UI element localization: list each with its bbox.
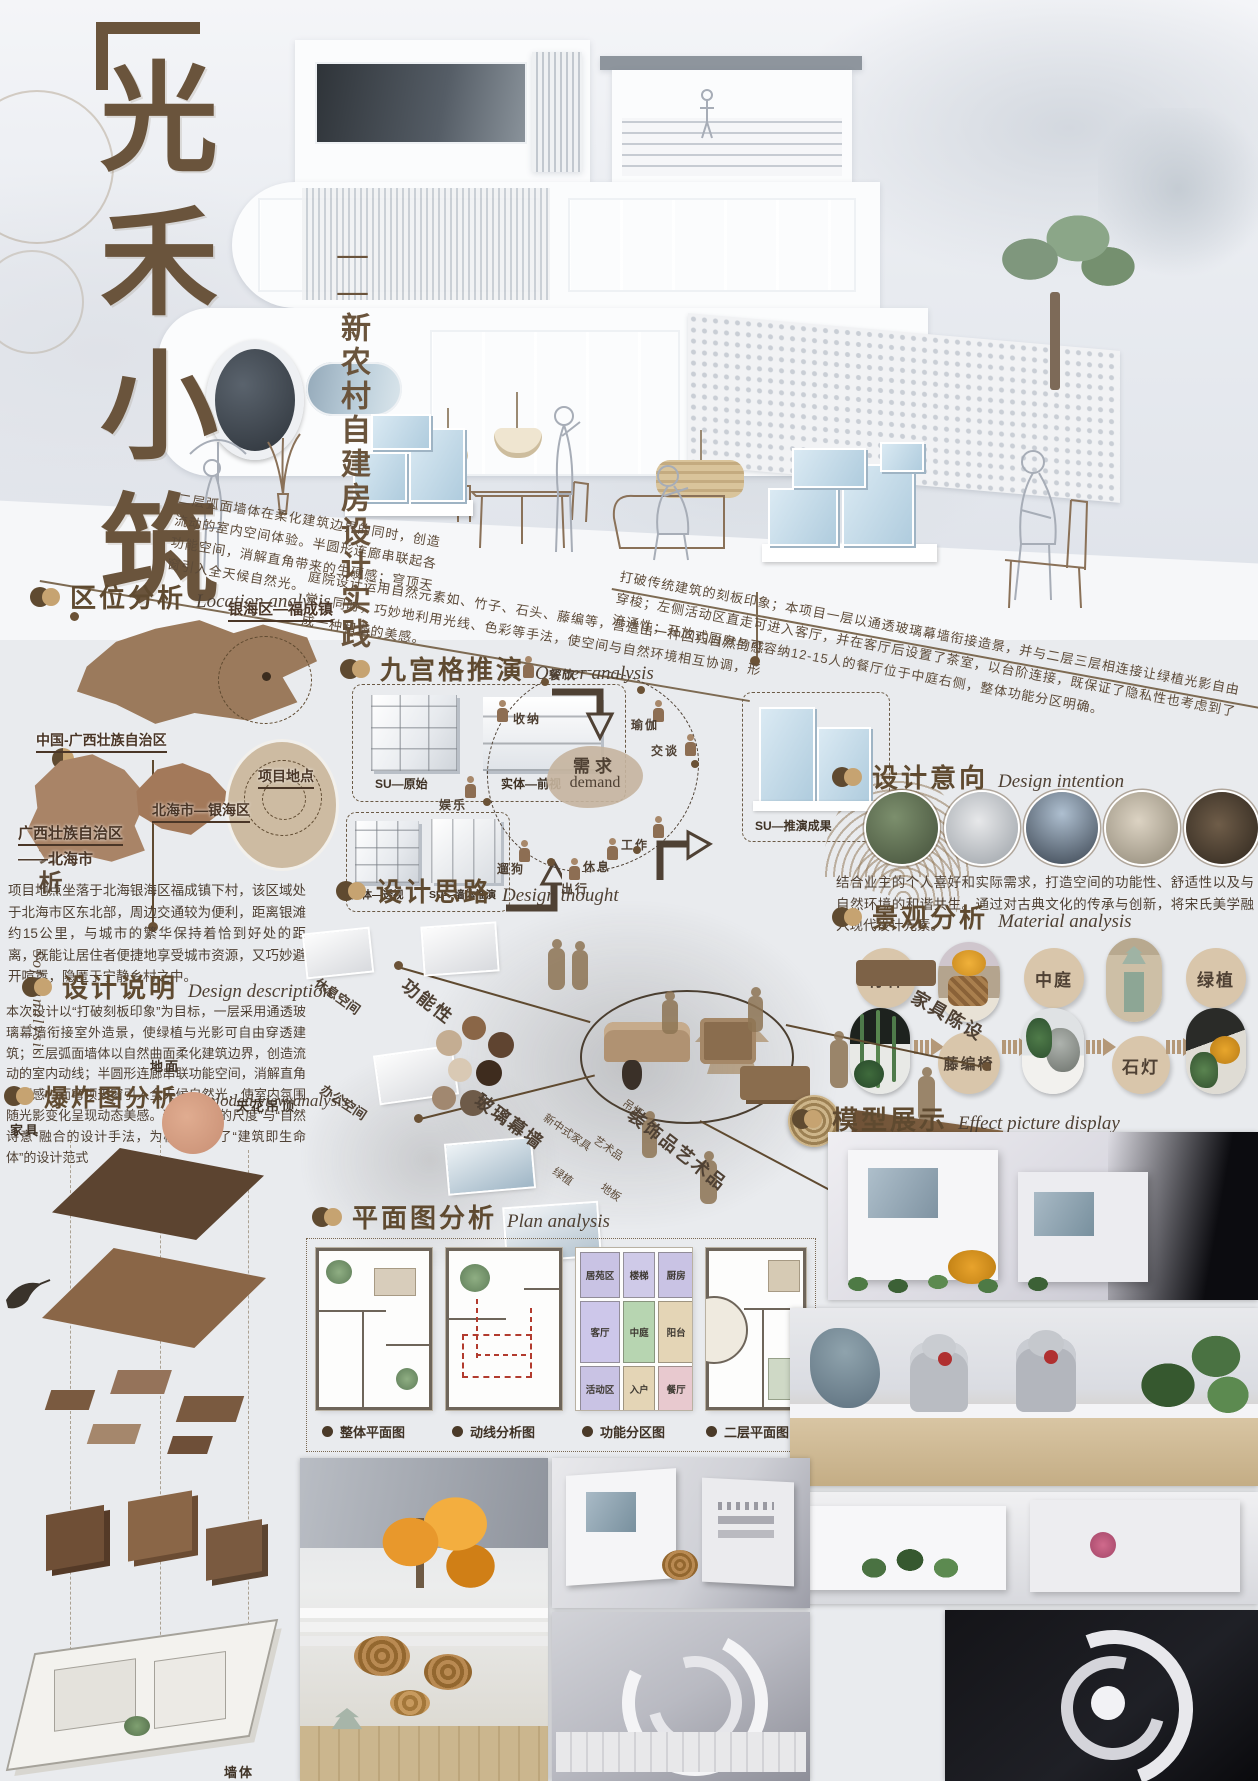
standing-figure-sketch [540,402,590,562]
material-label-stonelamp: 石灯 [1112,1036,1170,1094]
demand-item: 瑜伽 [631,716,659,733]
material-label-greenery: 绿植 [1186,948,1246,1008]
thought-dot [414,1114,423,1123]
exploded-label-ground: 地面 [150,1056,180,1075]
legend-label: 整体平面图 [340,1422,405,1441]
person-icon [517,840,531,862]
figure-silhouette [830,1040,848,1088]
demand-item: 餐饮 [549,666,577,683]
figure-silhouette [662,1000,678,1034]
ring-dot [691,760,699,768]
photo-lion-terrace [790,1308,1258,1486]
legend-label: 动线分析图 [470,1422,535,1441]
section-material: 景观分析 Material analysis [832,898,1132,935]
hero-model-b [762,440,937,565]
palette-dot [488,1032,514,1058]
ring-dot [547,858,555,866]
thought-thumb-cabinet [422,924,497,975]
plan-legend-item: 功能分区图 [582,1422,665,1441]
map-beihai [128,760,233,838]
building-top-window [315,62,527,144]
intention-photo-interior [1186,792,1258,864]
su-model-original [371,695,457,771]
ring-dot [541,678,549,686]
section-bullet-icon [792,1109,822,1129]
photo-white-spiral-stair [552,1612,810,1781]
terrace-figure-sketch [694,88,720,140]
person-icon [521,656,535,678]
legend-label: 功能分区图 [600,1422,665,1441]
plant-pot-sketch [248,398,318,518]
poster-title-char: 光 [84,62,234,180]
section-bullet-icon [4,1086,34,1106]
exploded-floor-slab [42,1248,266,1348]
grandma-sofa-sketch [604,448,764,578]
photo-model-interior [552,1458,810,1608]
legend-dot-icon [582,1426,593,1437]
section-title-en: Design intention [998,771,1124,793]
intention-photo-house [1026,792,1098,864]
section-bullet-icon [340,659,370,679]
section-plan: 平面图分析 Plan analysis [312,1198,610,1235]
section-title-en: Plan analysis [507,1211,610,1233]
section-bullet-icon [832,907,862,927]
legend-dot-icon [452,1426,463,1437]
exploded-label-ceiling: 天花吊顶 [236,1096,296,1115]
section-title-zh: 区位分析 [70,578,186,615]
chain-arrow-icon [1086,1038,1116,1056]
section-bullet-icon [336,881,366,901]
plan-legend-item: 二层平面图 [706,1422,789,1441]
section-bullet-icon [312,1207,342,1227]
exploded-wall-layer [14,1620,290,1770]
plan-overall [316,1248,432,1410]
crane-bird-icon [2,1270,52,1316]
map-label-town: 银海区—福成镇 [228,598,333,622]
building-mid-glass-right [568,198,856,292]
intention-photo-facade [946,792,1018,864]
photo-courtyard-model [300,1458,548,1781]
building-terrace-railing [622,118,842,176]
design-poster: 光 禾 小 筑 ——新农村自建房设计实践 项目分析 Soft analysis … [0,0,1258,1781]
palette-dot [436,1030,462,1056]
cabinet-silhouette [856,960,936,986]
sun-circle-icon [162,1092,224,1154]
person-icon [651,816,665,838]
room-cell: 餐厅 [658,1366,692,1410]
section-title-en: Design description [188,981,332,1003]
palette-dot [476,1060,502,1086]
section-title-en: Design thought [502,885,619,907]
material-photo-plant [1186,1008,1246,1094]
person-icon [463,776,477,798]
room-cell: 客厅 [580,1301,620,1363]
section-bullet-icon [832,767,862,787]
legend-dot-icon [322,1426,333,1437]
legend-dot-icon [706,1426,717,1437]
thought-dot [394,961,403,970]
demand-item: 交谈 [651,742,679,759]
material-photo-lantern [1106,938,1162,1022]
room-cell: 活动区 [580,1366,620,1410]
demand-item: 收纳 [513,710,541,727]
demand-item: 娱乐 [439,796,467,813]
room-cell: 楼梯 [623,1252,655,1298]
ring-dot [633,846,641,854]
section-title-zh: 平面图分析 [352,1198,497,1235]
photo-model-plants [790,1492,1258,1604]
exploded-furniture-layer [30,1360,280,1470]
plan-legend-item: 动线分析图 [452,1422,535,1441]
tree-trunk-icon [1050,292,1060,390]
photo-model-macro [828,1132,1258,1300]
demand-diagram: 需求 demand 餐饮 收纳 瑜伽 交谈 工作 休息 出行 遛狗 娱乐 [455,648,725,898]
intention-photo-balcony [1106,792,1178,864]
section-bullet-icon [30,587,60,607]
exploded-label-furniture: 家具 [10,1120,40,1139]
map-label-province2: ——北海市 [18,848,93,870]
plan-legend-item: 整体平面图 [322,1422,405,1441]
map-label-district: 北海市—银海区 [152,800,250,823]
tree-foliage-icon [985,202,1135,306]
section-thought: 设计思路 Design thought [336,872,619,909]
section-description: 设计说明 Design description [22,968,332,1005]
building-louvre-screen [532,52,582,172]
section-title-zh: 景观分析 [872,898,988,935]
thought-thumb-glass [446,1138,534,1193]
material-photo-rock [1022,1008,1084,1094]
photo-dark-spiral-stair [945,1610,1258,1781]
palette-dot [448,1058,472,1082]
map-label-province: 广西壮族自治区 [18,822,123,846]
section-bullet-icon [22,977,52,997]
section-intention: 设计意向 Design intention [832,758,1124,795]
legend-label: 二层平面图 [724,1422,789,1441]
room-cell: 阳台 [658,1301,692,1363]
thought-thumb-tvwall [304,929,372,977]
section-title-zh: 设计思路 [376,872,492,909]
thought-dot [982,1062,991,1071]
map-site-dot [262,672,271,681]
material-photo-bamboo [850,1008,910,1094]
ring-dot [483,798,491,806]
map-label-site: 项目地点 [258,766,314,789]
demand-center-en: demand [547,774,643,792]
room-cell: 入户 [623,1366,655,1410]
table-silhouette [740,1066,810,1100]
ring-dot [637,686,645,694]
section-title-zh: 设计意向 [872,758,988,795]
room-cell: 居苑区 [580,1252,620,1298]
room-cell: 中庭 [623,1301,655,1363]
su-model-label: SU—推演成果 [755,817,832,834]
section-title-en: Material analysis [998,911,1132,933]
person-icon [683,734,697,756]
lamp-cord-icon [516,392,518,430]
palette-dot [432,1086,456,1110]
material-label-atrium: 中庭 [1024,948,1084,1008]
poster-title-char: 小 [84,350,234,468]
figure-silhouette [572,950,588,990]
figure-silhouette [748,996,763,1032]
plan-circulation [446,1248,562,1410]
section-title-zh: 设计说明 [62,968,178,1005]
vase-icon [622,1060,642,1090]
building-roof-slab [600,56,862,70]
exploded-cabinet-layer [36,1490,276,1610]
section-title-zh: 爆炸图分析 [44,1078,179,1113]
intention-photo-garden [866,792,938,864]
poster-subtitle: ——新农村自建房设计实践 [330,238,374,718]
person-icon [495,700,509,722]
su-model-label: SU—原始 [375,775,428,792]
map-label-china: 中国-广西壮族自治区 [36,730,167,753]
person-icon [605,838,619,860]
reading-man-sketch [975,440,1115,615]
poster-title-char: 禾 [84,206,234,324]
plan-zoning: 居苑区 楼梯 厨房 客厅 中庭 阳台 活动区 入户 餐厅 [576,1248,692,1410]
room-cell: 厨房 [658,1252,692,1298]
palette-dot [462,1016,486,1040]
figure-silhouette [548,948,565,990]
